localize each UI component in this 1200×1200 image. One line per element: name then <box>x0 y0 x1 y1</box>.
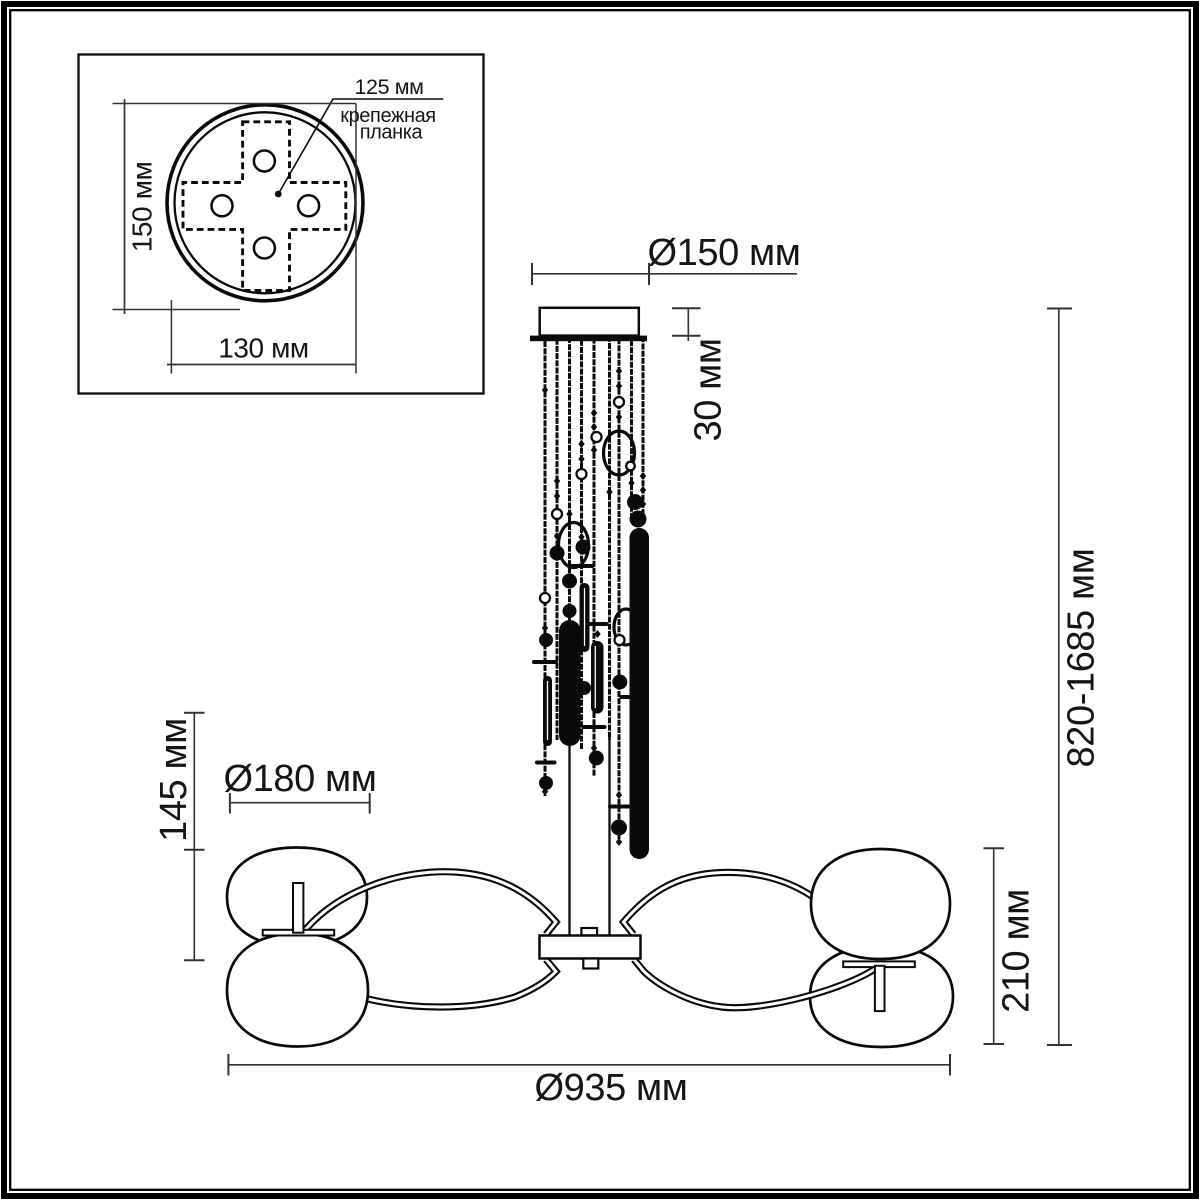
svg-text:125 мм: 125 мм <box>354 75 423 99</box>
svg-text:Ø180 мм: Ø180 мм <box>224 758 377 800</box>
svg-text:Ø935 мм: Ø935 мм <box>535 1067 688 1109</box>
svg-text:145 мм: 145 мм <box>153 718 195 842</box>
svg-text:130 мм: 130 мм <box>218 333 309 364</box>
svg-text:150 мм: 150 мм <box>127 162 158 253</box>
svg-text:30 мм: 30 мм <box>688 338 730 441</box>
svg-text:Ø150 мм: Ø150 мм <box>648 232 801 274</box>
svg-text:планка: планка <box>360 122 424 144</box>
svg-text:820-1685 мм: 820-1685 мм <box>1061 549 1103 768</box>
svg-text:210 мм: 210 мм <box>996 889 1038 1013</box>
